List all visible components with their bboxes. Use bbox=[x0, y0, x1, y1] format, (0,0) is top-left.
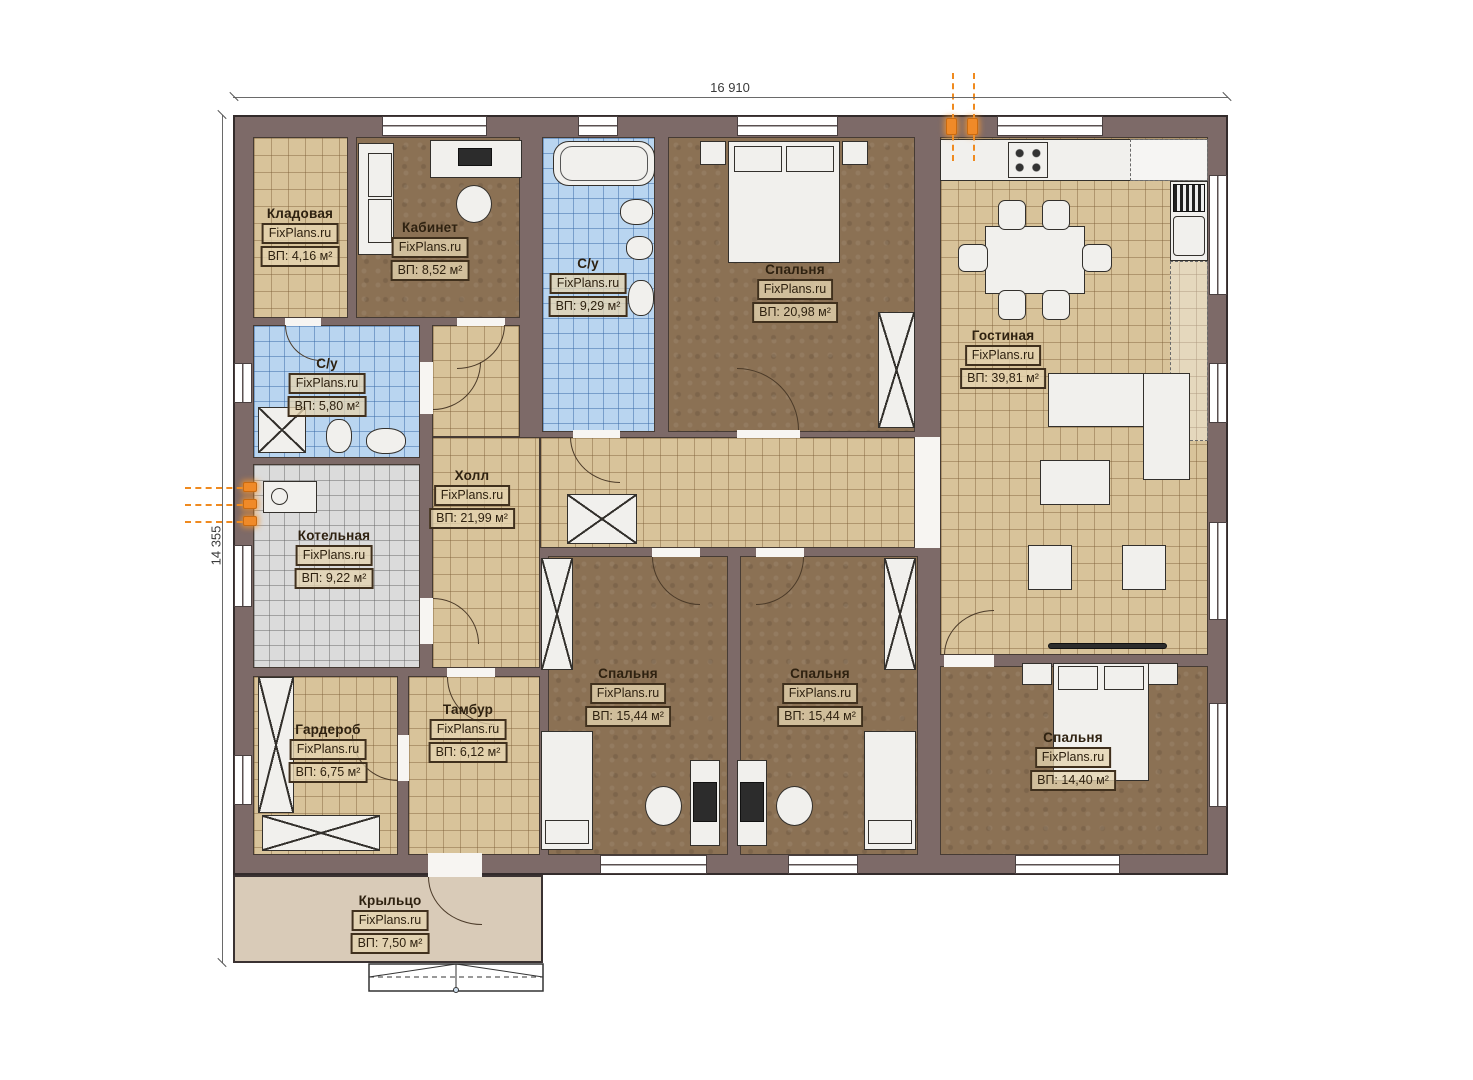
room-brand-tag: FixPlans.ru bbox=[590, 683, 667, 704]
dining-table-icon bbox=[985, 226, 1085, 294]
room-label-spalnya-top: Спальня FixPlans.ru ВП: 20,98 м² bbox=[752, 262, 838, 323]
coffee-table-icon bbox=[1040, 460, 1110, 505]
room-name: С/у bbox=[288, 356, 367, 371]
window bbox=[382, 116, 487, 136]
room-label-kladovaya: Кладовая FixPlans.ru ВП: 4,16 м² bbox=[261, 206, 340, 267]
room-label-spalnya-bl: Спальня FixPlans.ru ВП: 15,44 м² bbox=[585, 666, 671, 727]
pillow-icon bbox=[545, 820, 589, 844]
room-brand-tag: FixPlans.ru bbox=[289, 373, 366, 394]
door-opening bbox=[398, 735, 409, 781]
window bbox=[600, 855, 707, 874]
corner-sofa-chaise bbox=[1143, 373, 1190, 480]
sink-icon bbox=[628, 280, 654, 316]
room-area-tag: ВП: 39,81 м² bbox=[960, 368, 1046, 389]
bidet-icon bbox=[626, 236, 653, 260]
room-brand-tag: FixPlans.ru bbox=[296, 545, 373, 566]
window bbox=[1209, 175, 1227, 295]
room-name: Крыльцо bbox=[351, 893, 430, 908]
toilet-icon bbox=[620, 199, 653, 225]
desk-chair-icon bbox=[776, 786, 813, 826]
room-brand-tag: FixPlans.ru bbox=[1035, 747, 1112, 768]
wardrobe-icon bbox=[878, 312, 915, 428]
utility-riser-icon bbox=[967, 118, 978, 135]
room-name: Кладовая bbox=[261, 206, 340, 221]
room-name: Спальня bbox=[1030, 730, 1116, 745]
window bbox=[1209, 703, 1227, 807]
window bbox=[234, 545, 252, 607]
toilet-icon bbox=[326, 419, 352, 453]
upper-cabinet-dashed bbox=[1130, 139, 1208, 181]
room-brand-tag: FixPlans.ru bbox=[352, 910, 429, 931]
room-brand-tag: FixPlans.ru bbox=[434, 485, 511, 506]
room-label-su-left: С/у FixPlans.ru ВП: 5,80 м² bbox=[288, 356, 367, 417]
room-brand-tag: FixPlans.ru bbox=[262, 223, 339, 244]
nightstand-icon bbox=[842, 141, 868, 165]
room-name: Тамбур bbox=[429, 702, 508, 717]
window bbox=[234, 755, 252, 805]
room-area-tag: ВП: 15,44 м² bbox=[585, 706, 671, 727]
door-opening bbox=[756, 548, 804, 557]
window bbox=[997, 116, 1103, 136]
room-brand-tag: FixPlans.ru bbox=[757, 279, 834, 300]
chair-icon bbox=[958, 244, 988, 272]
wardrobe-icon bbox=[884, 558, 916, 670]
room-area-tag: ВП: 9,29 м² bbox=[549, 296, 628, 317]
chair-icon bbox=[1042, 200, 1070, 230]
armchair-icon bbox=[1122, 545, 1166, 590]
utility-inlet-icon bbox=[243, 499, 257, 509]
window bbox=[578, 116, 618, 136]
desk-lamp-icon bbox=[458, 148, 492, 166]
room-area-tag: ВП: 4,16 м² bbox=[261, 246, 340, 267]
door-opening bbox=[737, 430, 800, 438]
dimension-height-label: 14 355 bbox=[208, 526, 223, 566]
window bbox=[1209, 363, 1227, 423]
room-name: Спальня bbox=[777, 666, 863, 681]
sofa-cushion bbox=[368, 199, 392, 243]
room-name: Кабинет bbox=[391, 220, 470, 235]
door-opening bbox=[420, 362, 433, 414]
room-name: Спальня bbox=[752, 262, 838, 277]
chair-icon bbox=[1082, 244, 1112, 272]
room-label-tambur: Тамбур FixPlans.ru ВП: 6,12 м² bbox=[429, 702, 508, 763]
room-area-tag: ВП: 6,75 м² bbox=[289, 762, 368, 783]
pillow-icon bbox=[1104, 666, 1144, 690]
stove-icon bbox=[1008, 142, 1048, 178]
room-brand-tag: FixPlans.ru bbox=[290, 739, 367, 760]
room-area-tag: ВП: 21,99 м² bbox=[429, 508, 515, 529]
kitchen-sink-icon bbox=[1173, 216, 1205, 256]
floor-plan-canvas: 16 910 14 355 bbox=[0, 0, 1473, 1080]
room-area-tag: ВП: 6,12 м² bbox=[429, 742, 508, 763]
room-name: Холл bbox=[429, 468, 515, 483]
chair-icon bbox=[1042, 290, 1070, 320]
door-opening bbox=[420, 598, 433, 644]
room-label-garderob: Гардероб FixPlans.ru ВП: 6,75 м² bbox=[289, 722, 368, 783]
opening-corridor-gostinaya bbox=[915, 437, 940, 548]
window bbox=[234, 363, 252, 403]
sink-icon bbox=[366, 428, 406, 454]
porch-steps bbox=[368, 963, 544, 993]
room-label-kotelnaya: Котельная FixPlans.ru ВП: 9,22 м² bbox=[295, 528, 374, 589]
door-opening bbox=[944, 655, 994, 667]
room-name: Спальня bbox=[585, 666, 671, 681]
dimension-width-label: 16 910 bbox=[710, 80, 750, 95]
room-label-gostinaya: Гостиная FixPlans.ru ВП: 39,81 м² bbox=[960, 328, 1046, 389]
door-opening-entrance bbox=[428, 853, 482, 877]
room-name: С/у bbox=[549, 256, 628, 271]
office-chair-icon bbox=[456, 185, 492, 223]
utility-riser-line bbox=[973, 73, 975, 161]
door-opening bbox=[652, 548, 700, 557]
window bbox=[737, 116, 838, 136]
room-brand-tag: FixPlans.ru bbox=[965, 345, 1042, 366]
room-brand-tag: FixPlans.ru bbox=[550, 273, 627, 294]
wardrobe-icon bbox=[541, 558, 573, 670]
sofa-cushion bbox=[368, 153, 392, 197]
room-brand-tag: FixPlans.ru bbox=[782, 683, 859, 704]
pillow-icon bbox=[734, 146, 782, 172]
room-label-su-top: С/у FixPlans.ru ВП: 9,29 м² bbox=[549, 256, 628, 317]
room-area-tag: ВП: 15,44 м² bbox=[777, 706, 863, 727]
room-label-holl: Холл FixPlans.ru ВП: 21,99 м² bbox=[429, 468, 515, 529]
room-label-spalnya-bm: Спальня FixPlans.ru ВП: 15,44 м² bbox=[777, 666, 863, 727]
room-area-tag: ВП: 5,80 м² bbox=[288, 396, 367, 417]
door-opening bbox=[447, 668, 495, 677]
pillow-icon bbox=[868, 820, 912, 844]
room-name: Гостиная bbox=[960, 328, 1046, 343]
chair-icon bbox=[998, 290, 1026, 320]
dimension-line-top bbox=[233, 97, 1228, 98]
nightstand-icon bbox=[1148, 663, 1178, 685]
nightstand-icon bbox=[700, 141, 726, 165]
room-name: Гардероб bbox=[289, 722, 368, 737]
room-brand-tag: FixPlans.ru bbox=[392, 237, 469, 258]
utility-inlet-icon bbox=[243, 516, 257, 526]
nightstand-icon bbox=[1022, 663, 1052, 685]
boiler-dial bbox=[271, 488, 288, 505]
dish-rack-icon bbox=[1173, 184, 1205, 212]
pillow-icon bbox=[1058, 666, 1098, 690]
room-label-kabinet: Кабинет FixPlans.ru ВП: 8,52 м² bbox=[391, 220, 470, 281]
room-area-tag: ВП: 14,40 м² bbox=[1030, 770, 1116, 791]
room-area-tag: ВП: 7,50 м² bbox=[351, 933, 430, 954]
room-area-tag: ВП: 8,52 м² bbox=[391, 260, 470, 281]
cabinet-icon bbox=[567, 494, 637, 544]
room-label-spalnya-br: Спальня FixPlans.ru ВП: 14,40 м² bbox=[1030, 730, 1116, 791]
bathtub-inner bbox=[560, 146, 648, 181]
utility-inlet-icon bbox=[243, 482, 257, 492]
armchair-icon bbox=[1028, 545, 1072, 590]
window bbox=[788, 855, 858, 874]
wardrobe-icon bbox=[262, 815, 380, 851]
computer-icon bbox=[693, 782, 717, 822]
utility-riser-icon bbox=[946, 118, 957, 135]
chair-icon bbox=[998, 200, 1026, 230]
utility-riser-line bbox=[952, 73, 954, 161]
pillow-icon bbox=[786, 146, 834, 172]
room-label-kryltso: Крыльцо FixPlans.ru ВП: 7,50 м² bbox=[351, 893, 430, 954]
room-brand-tag: FixPlans.ru bbox=[430, 719, 507, 740]
tv-icon bbox=[1048, 643, 1167, 649]
room-area-tag: ВП: 9,22 м² bbox=[295, 568, 374, 589]
computer-icon bbox=[740, 782, 764, 822]
window bbox=[1015, 855, 1120, 874]
room-area-tag: ВП: 20,98 м² bbox=[752, 302, 838, 323]
window bbox=[1209, 522, 1227, 620]
room-name: Котельная bbox=[295, 528, 374, 543]
desk-chair-icon bbox=[645, 786, 682, 826]
